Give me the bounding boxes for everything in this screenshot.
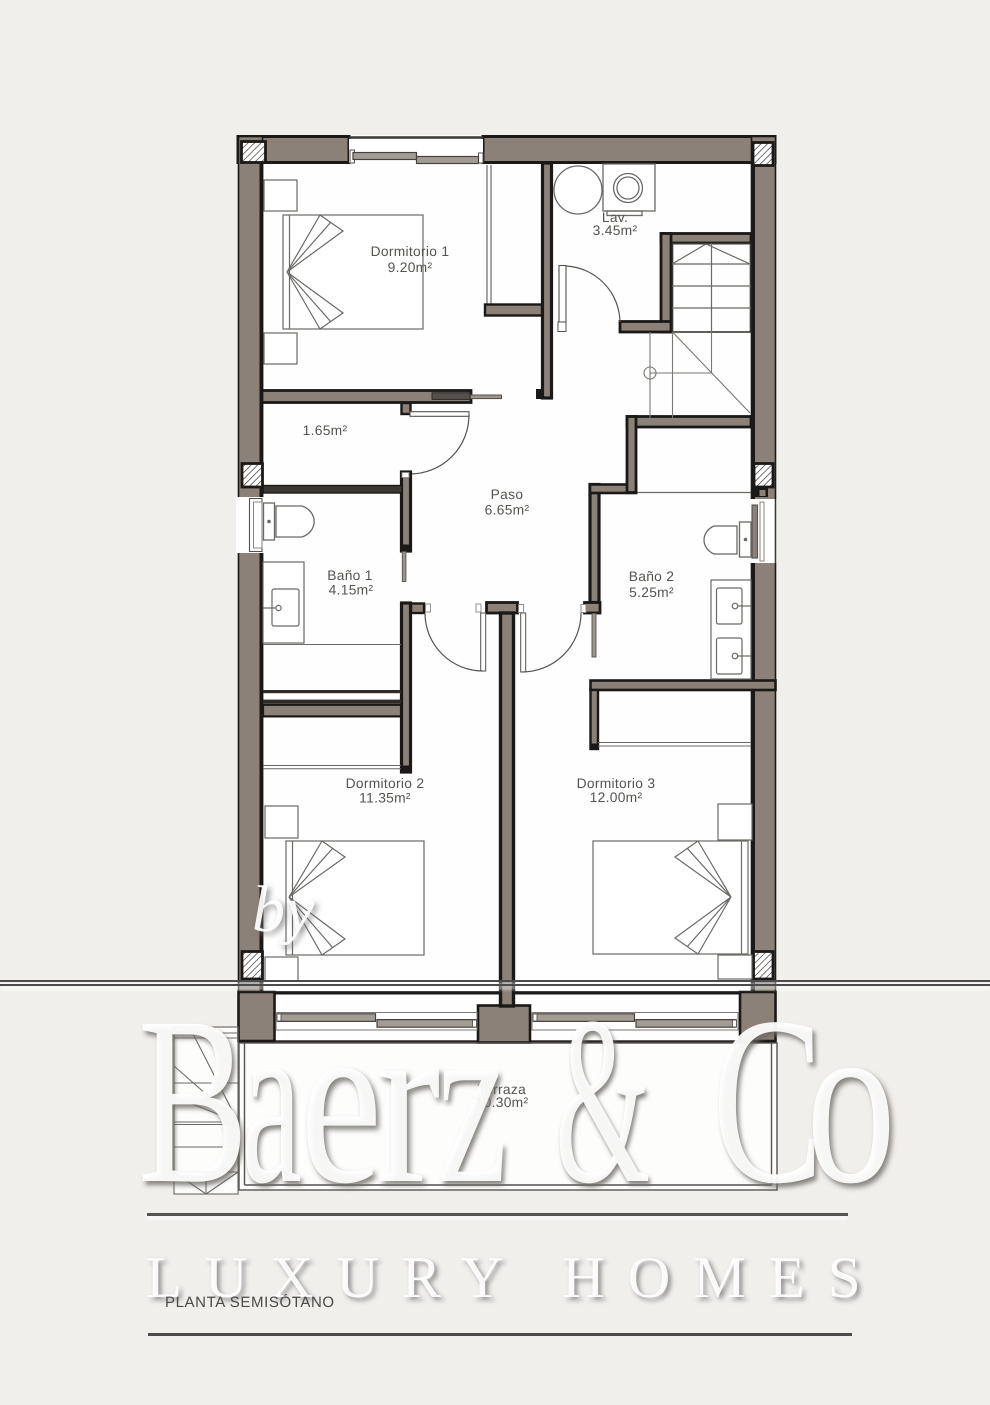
svg-text:Baño 2: Baño 2 <box>629 569 675 584</box>
svg-text:Baño 1: Baño 1 <box>327 568 373 583</box>
svg-text:Paso: Paso <box>491 487 524 502</box>
svg-text:9.20m²: 9.20m² <box>388 260 433 275</box>
svg-text:4.15m²: 4.15m² <box>329 583 374 598</box>
svg-text:Dormitorio 2: Dormitorio 2 <box>346 776 425 791</box>
svg-text:Dormitorio 3: Dormitorio 3 <box>577 776 656 791</box>
svg-text:1.65m²: 1.65m² <box>303 423 348 438</box>
svg-text:Dormitorio 1: Dormitorio 1 <box>371 244 450 259</box>
svg-text:12.00m²: 12.00m² <box>590 790 643 805</box>
svg-text:6.65m²: 6.65m² <box>485 503 530 518</box>
svg-text:11.35m²: 11.35m² <box>359 791 411 806</box>
svg-text:5.25m²: 5.25m² <box>629 585 674 600</box>
svg-text:3.45m²: 3.45m² <box>593 223 638 238</box>
